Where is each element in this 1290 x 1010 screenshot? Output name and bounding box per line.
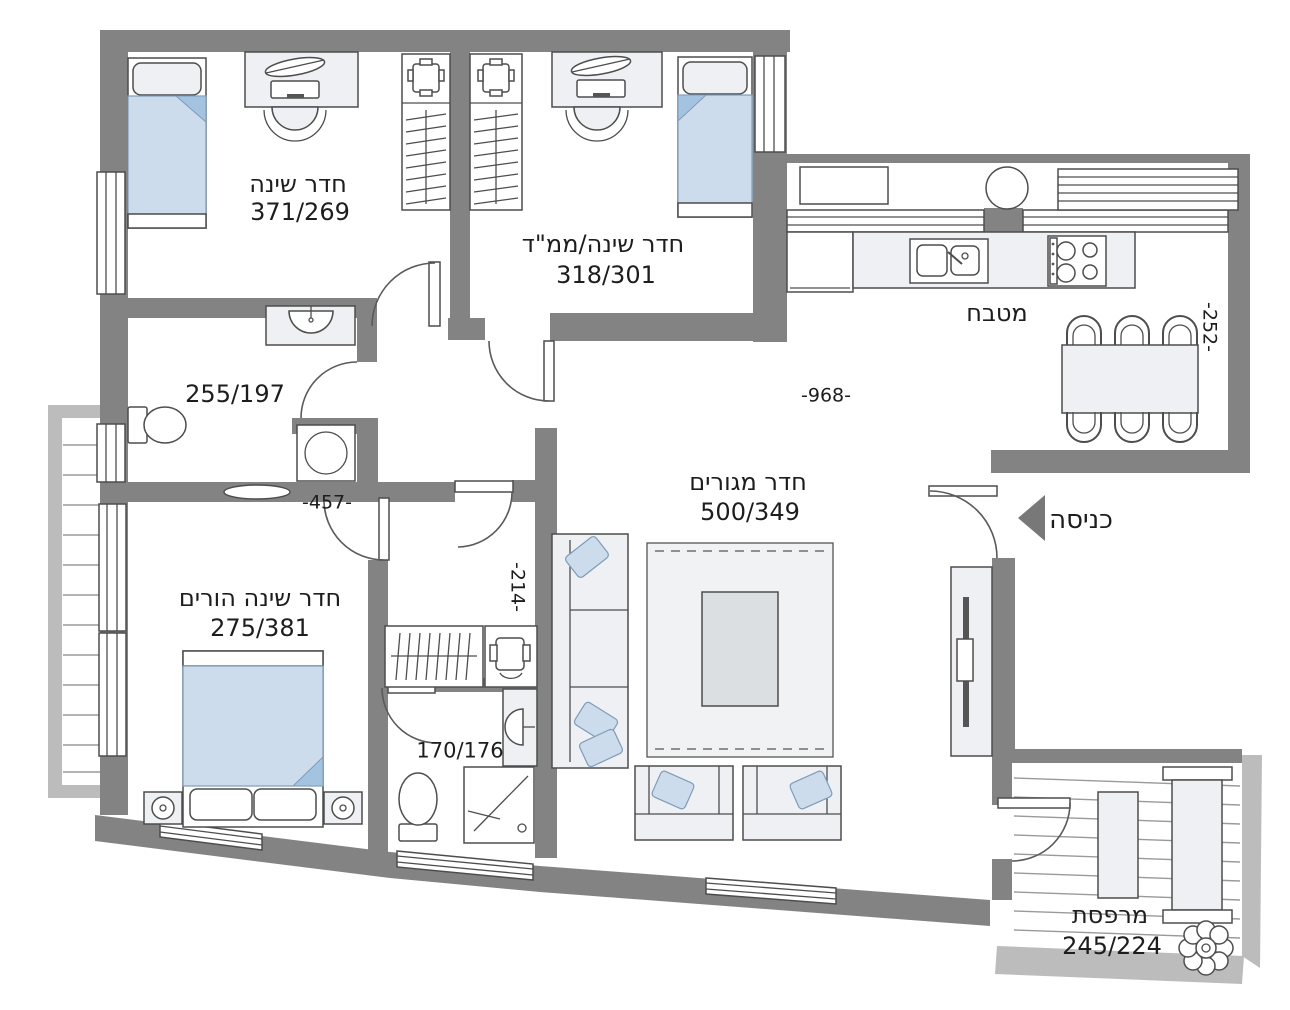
desk-with-laptop-icon [245,52,358,107]
side-balcony-deck-stripes [63,445,100,772]
kitchen-depth-dimension: -252- [1200,302,1219,352]
bathroom-size-label: 255/197 [185,382,285,406]
window [97,424,125,482]
kitchen-name-label: מטבח [966,301,1027,325]
window [99,504,126,631]
master-size-label: 275/381 [210,616,310,640]
bathroom-sink-icon [503,689,537,766]
bench-icon [1098,792,1138,898]
entrance-arrow-icon [1018,495,1045,541]
nightstand-lamp-icon [324,792,362,824]
single-bed-icon [678,57,752,217]
toilet-icon [399,773,437,841]
boiler-icon [986,167,1028,209]
bathroom-wall-dimension: -457- [302,494,352,513]
bedroom1-name-label: חדר שינה [249,172,347,196]
rug-icon [647,543,833,757]
bedroom2-furniture [470,52,752,217]
corridor-width-dimension: -214- [508,562,527,612]
kitchen-window [787,210,984,232]
window [755,56,785,152]
master-name-label: חדר שינה הורים [179,586,341,610]
balcony-size-label: 245/224 [1062,934,1162,958]
wardrobe-icon [385,626,483,687]
sofa-icon [552,534,628,768]
living-name-label: חדר מגורים [689,470,807,494]
window [99,633,126,756]
entry-door-arc [929,486,997,558]
toilet-icon [128,407,186,443]
kitchen-window [1023,210,1228,232]
ensuite-fixtures [399,689,537,843]
balcony-door-arc [998,798,1070,861]
vanity-chair-icon [485,626,537,687]
ensuite-size-label: 170/176 [416,741,503,762]
tv-unit-icon [951,567,992,756]
desk-with-laptop-icon [552,52,662,107]
coffee-table-icon [702,592,778,706]
living-size-label: 500/349 [700,500,800,524]
living-width-dimension: -968- [801,387,851,406]
door-arc [301,362,357,418]
wardrobe-icon [402,54,450,210]
living-furniture [552,534,992,840]
balcony-name-label: מרפסת [1072,903,1148,927]
door-arc [372,262,440,326]
shower-icon [464,767,534,843]
side-balcony [48,405,100,798]
armchair-icon [743,766,841,840]
bedroom2-size-label: 318/301 [556,263,656,287]
stove-4-burners-icon [1048,236,1106,286]
floor-plan: חדר שינה 371/269 חדר שינה/ממ"ד 318/301 מ… [0,0,1290,1010]
pergola-grill-icon [1058,169,1238,210]
window [97,172,125,294]
door-arc [455,481,513,547]
plant-icon [1179,921,1233,975]
bedroom1-size-label: 371/269 [250,200,350,224]
washing-machine-icon [297,425,355,481]
wardrobe-icon [470,54,522,210]
ac-unit-icon [800,167,888,204]
threshold [224,485,290,499]
lounge-icon [1163,767,1232,923]
bathroom-sink-icon [266,306,355,345]
dining-table-6-chairs-icon [1062,316,1198,442]
bedroom2-name-label: חדר שינה/ממ"ד [522,232,684,256]
balcony-rim-right [1242,755,1262,968]
double-sink-icon [910,239,988,283]
armchair-icon [635,766,733,840]
double-bed-icon [183,651,323,827]
nightstand-lamp-icon [144,792,182,824]
refrigerator-icon [787,232,853,292]
entrance-label: כניסה [1049,507,1113,533]
office-chair-icon [264,107,326,141]
door-arc [489,341,554,401]
office-chair-icon [566,107,628,141]
single-bed-icon [128,58,206,228]
